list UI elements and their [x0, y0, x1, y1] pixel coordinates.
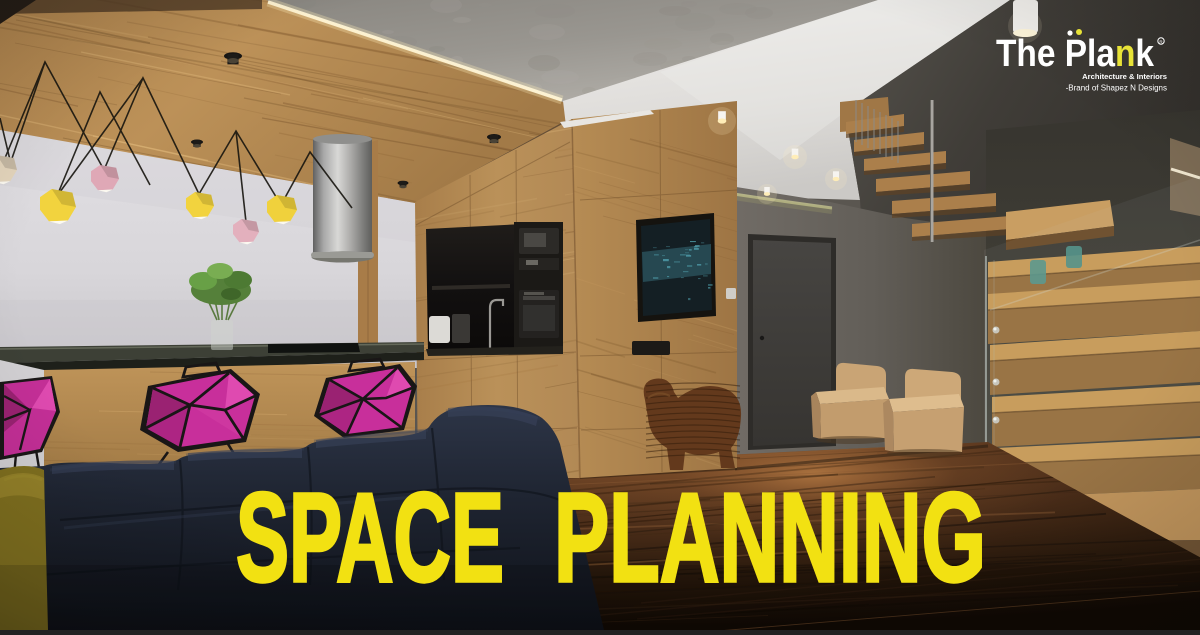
svg-text:PLANNING: PLANNING	[554, 467, 986, 608]
svg-text:The Plank: The Plank	[996, 33, 1155, 75]
svg-text:-Brand of Shapez N Designs: -Brand of Shapez N Designs	[1066, 84, 1167, 93]
svg-text:Architecture & Interiors: Architecture & Interiors	[1082, 72, 1167, 81]
svg-text:SPACE: SPACE	[236, 467, 504, 608]
